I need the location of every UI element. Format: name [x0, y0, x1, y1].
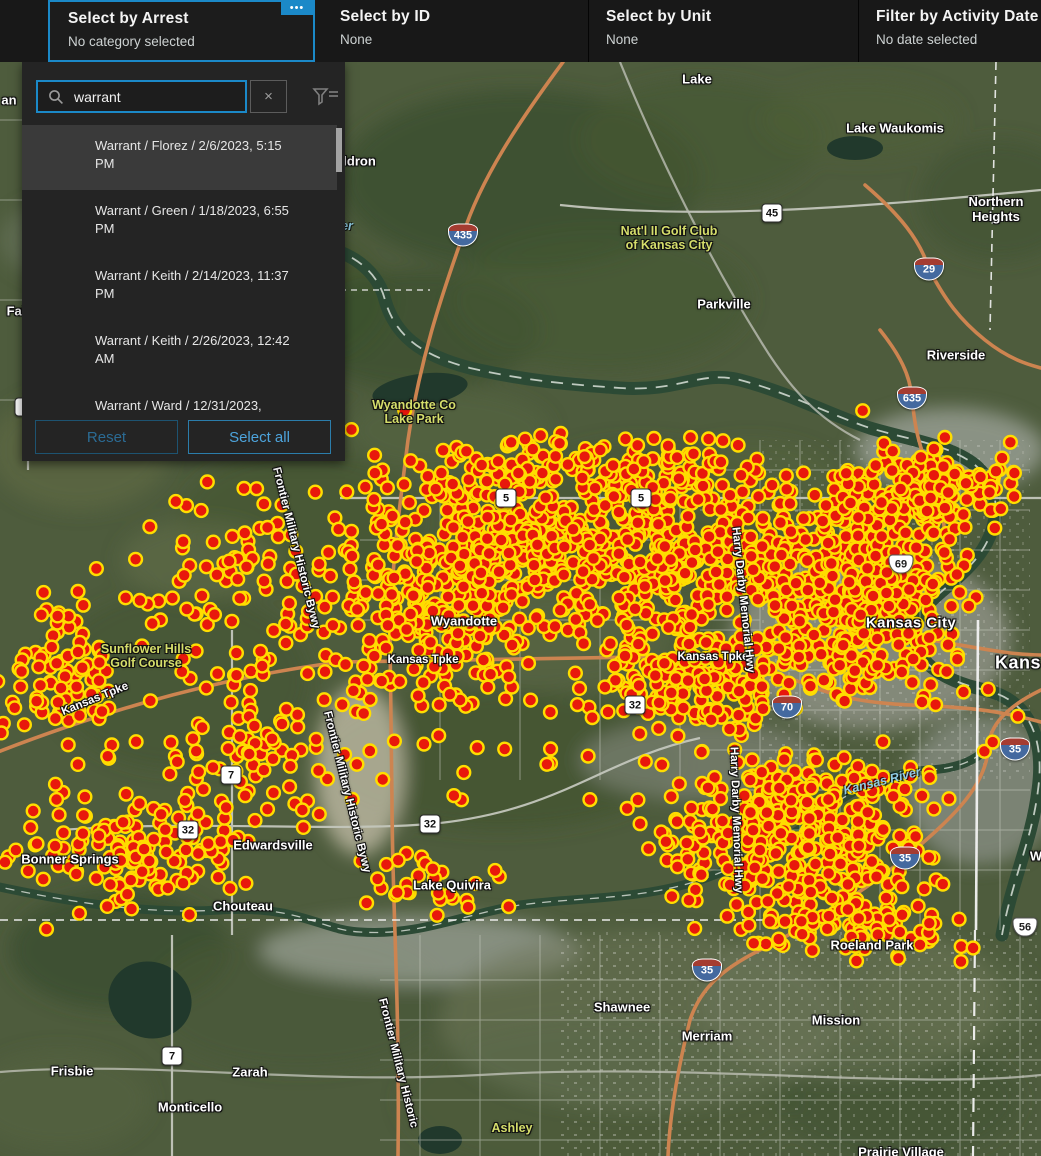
section-select-by-arrest[interactable]: Select by Arrest No category selected ••…: [48, 0, 315, 62]
section-filter-by-activity-date[interactable]: Filter by Activity Date No date selected: [858, 0, 1041, 62]
list-scrollbar-thumb[interactable]: [336, 128, 342, 172]
map-label: Merriam: [682, 1029, 733, 1044]
map-label: Roeland Park: [830, 938, 913, 953]
interstate-shield: 35: [692, 959, 722, 982]
section-select-by-id[interactable]: Select by ID None: [322, 0, 588, 62]
highway-shield: 7: [221, 766, 242, 785]
map-label: Kansas Tpke: [60, 680, 130, 718]
app-window: 435296357035353569564555323232777LakeLak…: [0, 0, 1041, 1156]
map-label: Ashley: [492, 1121, 533, 1135]
map-label: Kans: [995, 653, 1041, 674]
section-select-by-unit[interactable]: Select by Unit None: [588, 0, 858, 62]
filter-header-bar: Select by Arrest No category selected ••…: [0, 0, 1041, 62]
map-label: Kansas Tpke: [388, 654, 459, 666]
map-label: Frontier Military Historic Bywy: [270, 466, 322, 630]
map-label: Kansas River: [842, 765, 922, 798]
section-subtitle: No date selected: [876, 32, 1041, 47]
interstate-shield: 435: [448, 224, 478, 247]
map-label: Frisbie: [51, 1064, 94, 1079]
list-scrollbar[interactable]: [336, 126, 342, 416]
arrest-result-list: Warrant / Florez / 2/6/2023, 5:15 PMWarr…: [22, 125, 345, 419]
section-title: Select by Unit: [606, 8, 858, 26]
map-label: Wyandotte Co Lake Park: [372, 398, 456, 426]
arrest-list-item[interactable]: Warrant / Green / 1/18/2023, 6:55 PM: [22, 190, 337, 255]
arrest-selection-panel: × Warrant / Florez / 2/6/2023, 5:15 PMWa…: [22, 62, 345, 461]
map-label: Sunflower Hills Golf Course: [101, 642, 191, 670]
map-label: Zarah: [232, 1065, 267, 1080]
interstate-shield: 35: [1000, 738, 1030, 761]
map-label: Prairie Village: [858, 1145, 944, 1156]
interstate-shield: 70: [772, 696, 802, 719]
highway-shield: 32: [625, 696, 646, 715]
filter-icon[interactable]: [311, 86, 341, 108]
map-label: Harry Darby Memorial Hwy: [727, 747, 744, 894]
highway-shield: 5: [496, 489, 517, 508]
map-label: Monticello: [158, 1100, 222, 1115]
section-subtitle: None: [606, 32, 858, 47]
highway-shield: 45: [762, 204, 783, 223]
map-label: Frontier Military Historic: [376, 997, 420, 1129]
arrest-list-item[interactable]: Warrant / Keith / 2/14/2023, 11:37 PM: [22, 255, 337, 320]
interstate-shield: 635: [897, 387, 927, 410]
highway-shield: 5: [631, 489, 652, 508]
arrest-list-item[interactable]: Warrant / Florez / 2/6/2023, 5:15 PM: [22, 125, 337, 190]
clear-search-button[interactable]: ×: [250, 80, 287, 113]
section-subtitle: No category selected: [68, 34, 313, 49]
section-title: Filter by Activity Date: [876, 8, 1041, 26]
select-all-button[interactable]: Select all: [188, 420, 331, 454]
map-label: Nat'l II Golf Club of Kansas City: [621, 224, 718, 252]
map-label: Shawnee: [594, 1000, 650, 1015]
interstate-shield: 35: [890, 847, 920, 870]
section-subtitle: None: [340, 32, 588, 47]
map-label: Lake Quivira: [413, 878, 491, 893]
map-label: Northern Heights: [969, 194, 1024, 224]
arrest-list-item[interactable]: Warrant / Keith / 2/26/2023, 12:42 AM: [22, 320, 337, 385]
arrest-list-item[interactable]: Warrant / Ward / 12/31/2023, 10:55 PM: [22, 385, 337, 419]
map-label: Bonner Springs: [21, 852, 119, 867]
search-box: [36, 80, 247, 113]
section-menu-button[interactable]: •••: [281, 2, 313, 15]
section-title: Select by Arrest: [68, 10, 313, 28]
highway-shield: 32: [178, 821, 199, 840]
highway-shield: 7: [162, 1047, 183, 1066]
map-label: Riverside: [927, 348, 986, 363]
search-icon: [48, 89, 64, 105]
map-label: Kansas Tpke: [678, 651, 749, 663]
map-label: W: [1030, 849, 1041, 864]
highway-shield: 32: [420, 815, 441, 834]
interstate-shield: 29: [914, 258, 944, 281]
map-label: Kansas City: [866, 615, 956, 632]
map-label: Lake Waukomis: [846, 121, 944, 136]
map-label: Wyandotte: [431, 614, 497, 629]
section-title: Select by ID: [340, 8, 588, 26]
map-label: an: [1, 93, 16, 108]
reset-button[interactable]: Reset: [35, 420, 178, 454]
map-label: Lake: [682, 72, 712, 87]
map-label: Frontier Military Historic Bywy: [321, 710, 373, 874]
map-label: Edwardsville: [233, 838, 312, 853]
search-input[interactable]: [72, 89, 255, 105]
highway-shield: 56: [1013, 918, 1038, 937]
map-label: Chouteau: [213, 899, 273, 914]
map-label: Parkville: [697, 297, 751, 312]
map-label: Mission: [812, 1013, 860, 1028]
highway-shield: 69: [889, 555, 914, 574]
